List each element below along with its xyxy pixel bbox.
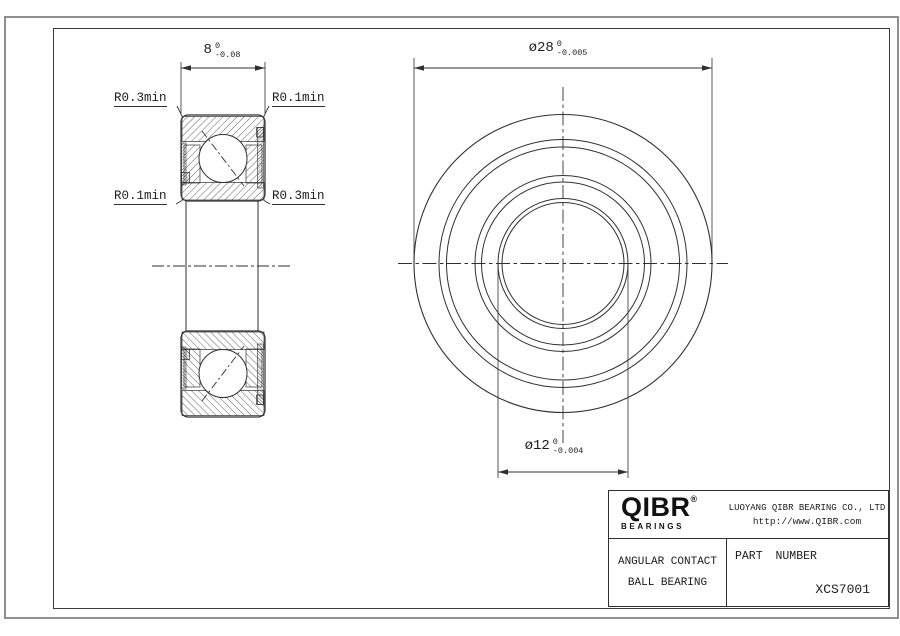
company-website: http://www.QIBR.com (753, 516, 861, 527)
leader-line (176, 201, 182, 205)
part-number-cell: PART NUMBER XCS7001 (726, 539, 888, 606)
outer-diameter-dimension-text: ø28 0 -0.005 (523, 40, 593, 58)
part-number-value: XCS7001 (815, 582, 870, 597)
bore-diameter-dimension-text: ø12 0 -0.004 (519, 438, 589, 456)
company-cell: LUOYANG QIBR BEARING CO., LTD http://www… (726, 491, 888, 538)
brand-name: QIBR (621, 492, 691, 522)
radius-label-bottom-left: R0.1min (114, 190, 167, 205)
section-view (152, 62, 290, 417)
width-dimension-value: 8 (204, 42, 212, 59)
engineering-drawing-page: 8 0 -0.08 ø28 0 -0.005 ø12 0 -0.004 R0.3… (0, 0, 900, 636)
bearing-section-top (181, 115, 265, 201)
front-view (398, 58, 728, 478)
outer-diameter-tolerance: 0 -0.005 (557, 40, 588, 58)
brand-tagline: BEARINGS (621, 522, 726, 531)
logo-cell: QIBR® BEARINGS (609, 491, 726, 538)
product-name-line2: BALL BEARING (628, 577, 707, 589)
outer-diameter-value: ø28 (529, 40, 554, 57)
bore-diameter-tolerance: 0 -0.004 (553, 438, 584, 456)
bore-diameter-value: ø12 (525, 438, 550, 455)
title-block-header-row: QIBR® BEARINGS LUOYANG QIBR BEARING CO.,… (609, 491, 888, 539)
part-number-label: PART NUMBER (735, 550, 817, 563)
width-dimension-text: 8 0 -0.08 (192, 42, 252, 60)
radius-label-top-right: R0.1min (272, 92, 325, 107)
radius-label-top-left: R0.3min (114, 92, 167, 107)
title-block-detail-row: ANGULAR CONTACT BALL BEARING PART NUMBER… (609, 539, 888, 606)
radius-label-bottom-right: R0.3min (272, 190, 325, 205)
company-name: LUOYANG QIBR BEARING CO., LTD (729, 503, 886, 513)
leader-line (264, 201, 270, 205)
title-block: QIBR® BEARINGS LUOYANG QIBR BEARING CO.,… (608, 490, 889, 607)
width-dimension-tolerance: 0 -0.08 (215, 42, 241, 60)
registered-trademark-symbol: ® (691, 494, 698, 504)
brand-logo: QIBR® (621, 494, 726, 521)
bearing-section-bottom (181, 331, 265, 417)
product-description-cell: ANGULAR CONTACT BALL BEARING (609, 539, 726, 606)
product-name-line1: ANGULAR CONTACT (618, 556, 717, 568)
